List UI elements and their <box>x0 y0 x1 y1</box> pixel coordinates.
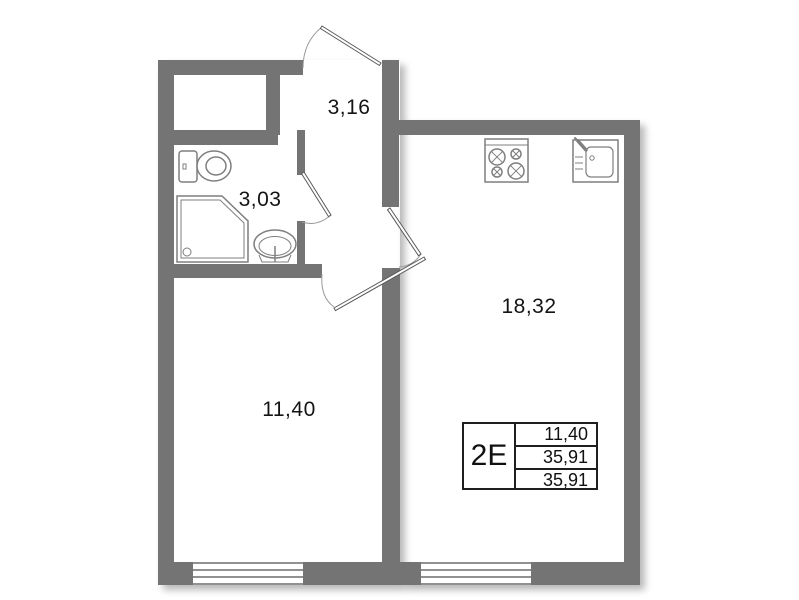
living-room-window <box>421 562 531 585</box>
shower-icon <box>177 196 248 262</box>
bedroom-window <box>193 562 303 585</box>
floor-plan: 3,16 3,03 18,32 11,40 2E 11,40 35,91 35,… <box>0 0 799 600</box>
left-wall <box>158 60 174 585</box>
kitchen-fixtures <box>485 138 618 182</box>
bathroom-area-label: 3,03 <box>239 188 282 212</box>
unit-type-cell: 2E <box>464 424 516 488</box>
right-wall <box>624 120 640 585</box>
info-table-row: 11,40 <box>516 424 596 447</box>
closet-divider-wall <box>266 75 280 135</box>
entrance-door-swing <box>303 26 381 68</box>
top-wall <box>158 60 303 75</box>
walls <box>158 60 640 585</box>
info-table-row: 35,91 <box>516 447 596 470</box>
room-divider-wall <box>382 268 400 585</box>
info-table-values: 11,40 35,91 35,91 <box>516 424 596 488</box>
bathroom-bottom-wall <box>158 264 322 278</box>
toilet-icon <box>179 151 231 182</box>
sink-icon <box>254 230 296 262</box>
info-table-row: 35,91 <box>516 470 596 491</box>
bedroom-door-swing <box>322 257 426 311</box>
bathroom-right-wall-upper <box>297 130 305 175</box>
kitchen-top-wall <box>390 120 640 135</box>
bathroom-door-swing <box>302 172 332 223</box>
bathroom-top-wall <box>174 130 278 145</box>
info-table: 2E 11,40 35,91 35,91 <box>462 422 598 490</box>
living-room-door-swing <box>388 208 422 267</box>
bathroom-right-wall-lower <box>297 221 305 266</box>
kitchen-living-area-label: 18,32 <box>501 295 556 319</box>
stove-icon <box>485 139 528 182</box>
hallway-area-label: 3,16 <box>328 96 371 120</box>
bedroom-area-label: 11,40 <box>262 398 316 422</box>
plan-drawing <box>0 0 799 600</box>
kitchen-sink-icon <box>573 138 618 182</box>
